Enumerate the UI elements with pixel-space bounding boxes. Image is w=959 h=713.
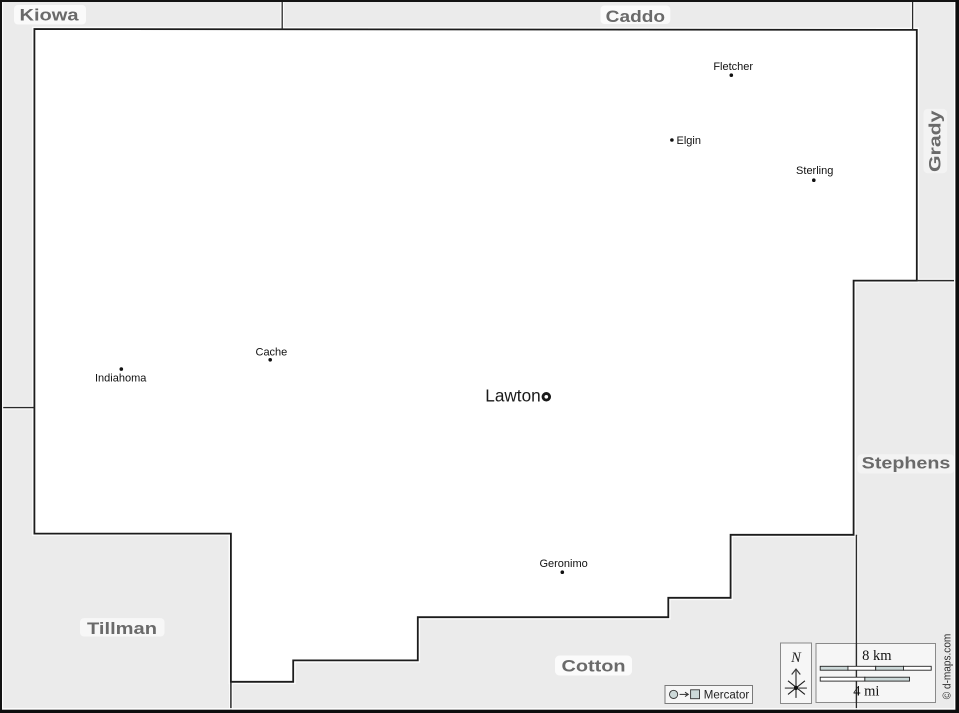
svg-text:Grady: Grady [927, 109, 945, 172]
svg-text:Cotton: Cotton [562, 657, 626, 675]
svg-text:N: N [790, 650, 802, 666]
svg-text:Stephens: Stephens [862, 455, 951, 473]
svg-text:Indiahoma: Indiahoma [95, 373, 147, 385]
svg-text:Cache: Cache [256, 347, 288, 359]
svg-text:4 mi: 4 mi [853, 684, 879, 700]
svg-text:Sterling: Sterling [796, 165, 833, 177]
svg-text:8 km: 8 km [862, 648, 892, 664]
svg-text:Fletcher: Fletcher [713, 61, 753, 73]
svg-text:© d-maps.com: © d-maps.com [942, 634, 954, 700]
svg-text:Mercator: Mercator [704, 690, 750, 702]
svg-text:Kiowa: Kiowa [20, 7, 80, 25]
svg-text:Elgin: Elgin [677, 135, 701, 147]
svg-text:Caddo: Caddo [606, 8, 665, 26]
svg-text:Tillman: Tillman [87, 620, 157, 638]
svg-text:Geronimo: Geronimo [539, 558, 587, 570]
svg-text:Lawton: Lawton [485, 386, 540, 406]
